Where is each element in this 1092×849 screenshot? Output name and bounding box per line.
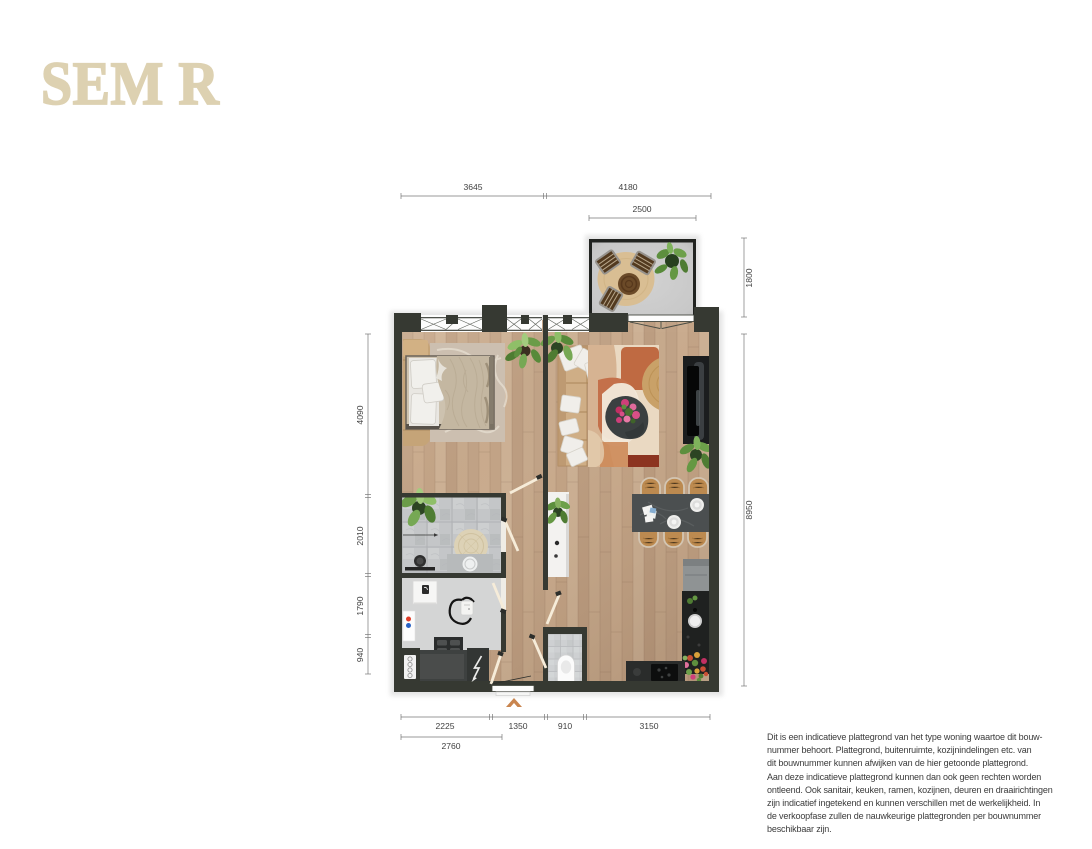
svg-text:2500: 2500 [632, 204, 651, 214]
svg-text:1800: 1800 [744, 268, 754, 287]
svg-text:1350: 1350 [508, 721, 527, 731]
svg-text:940: 940 [355, 648, 365, 663]
svg-text:2225: 2225 [435, 721, 454, 731]
svg-text:4180: 4180 [618, 182, 637, 192]
svg-text:2010: 2010 [355, 526, 365, 545]
svg-text:910: 910 [558, 721, 573, 731]
svg-text:3645: 3645 [463, 182, 482, 192]
svg-text:3150: 3150 [639, 721, 658, 731]
svg-text:4090: 4090 [355, 405, 365, 424]
svg-text:8950: 8950 [744, 500, 754, 519]
svg-text:2760: 2760 [441, 741, 460, 751]
svg-text:1790: 1790 [355, 596, 365, 615]
